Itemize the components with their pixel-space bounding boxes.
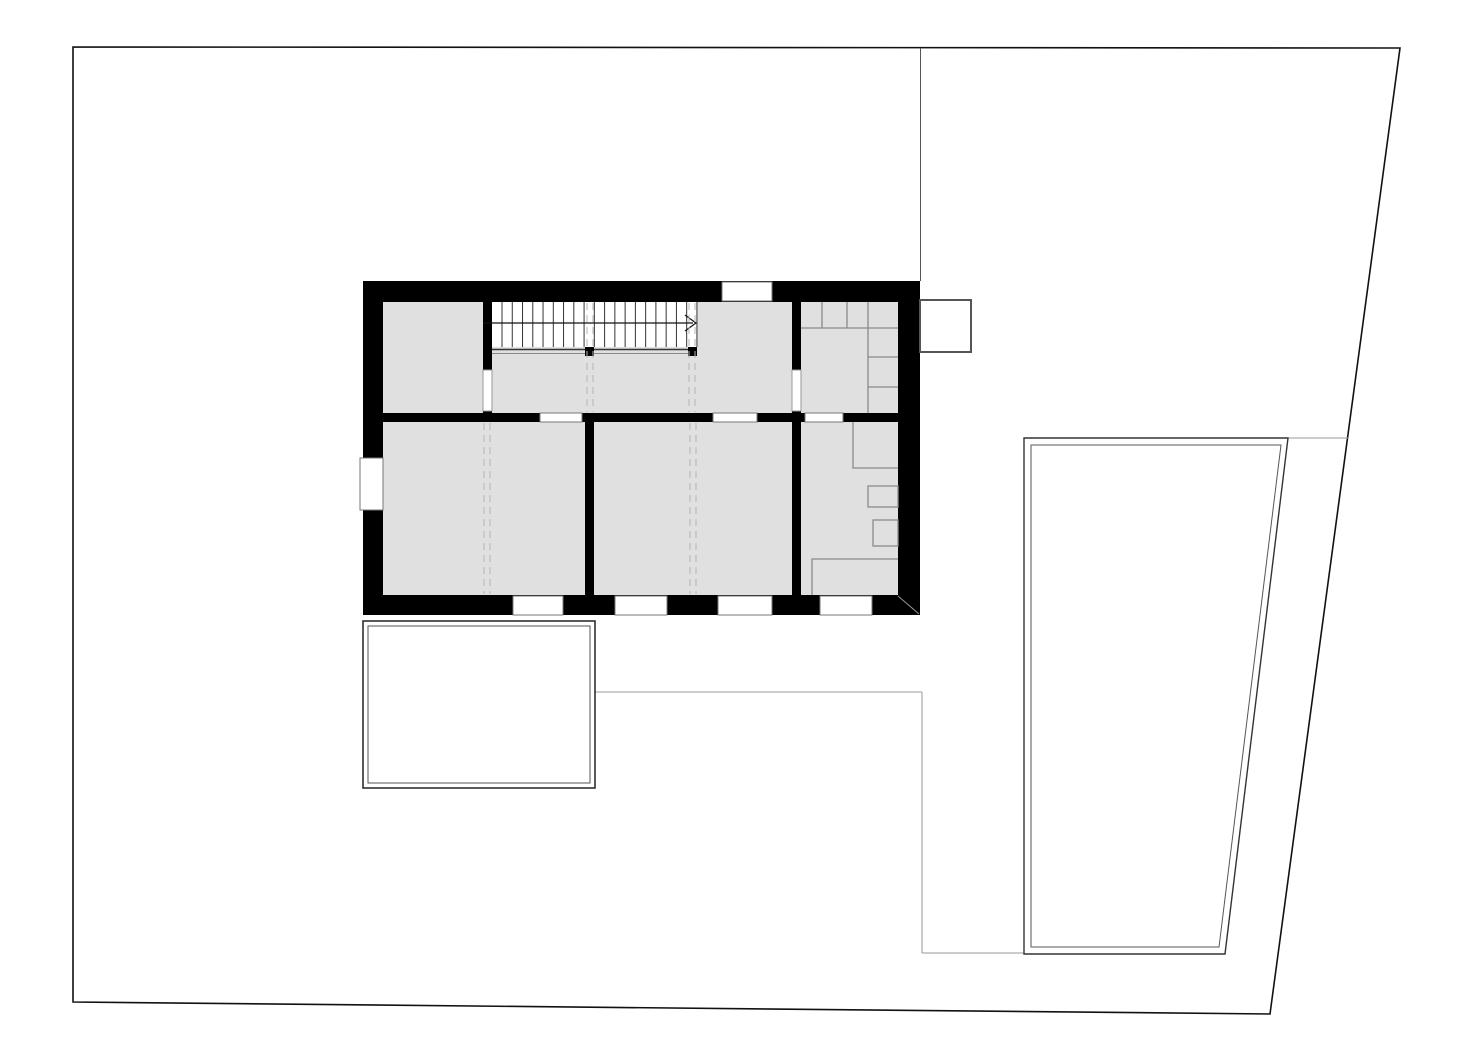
plan-canvas	[0, 0, 1473, 1064]
window-south-1	[513, 596, 563, 615]
interior-window-2	[713, 413, 757, 422]
room-lower-right	[801, 422, 898, 595]
interior-window-1	[540, 413, 582, 422]
window-south-3	[718, 596, 772, 615]
window-south-2	[615, 596, 667, 615]
annex-box	[920, 300, 971, 352]
room-upper-left	[383, 302, 483, 413]
floor-plan-svg	[0, 0, 1473, 1064]
interior-window-3	[805, 413, 843, 422]
window-north	[722, 282, 772, 301]
terrace-outer	[363, 621, 595, 788]
door-opening-upper-left	[483, 370, 492, 411]
window-south-4	[820, 596, 872, 615]
room-lower-middle	[594, 422, 792, 595]
door-opening-upper-right	[792, 370, 801, 411]
window-west	[360, 458, 383, 510]
